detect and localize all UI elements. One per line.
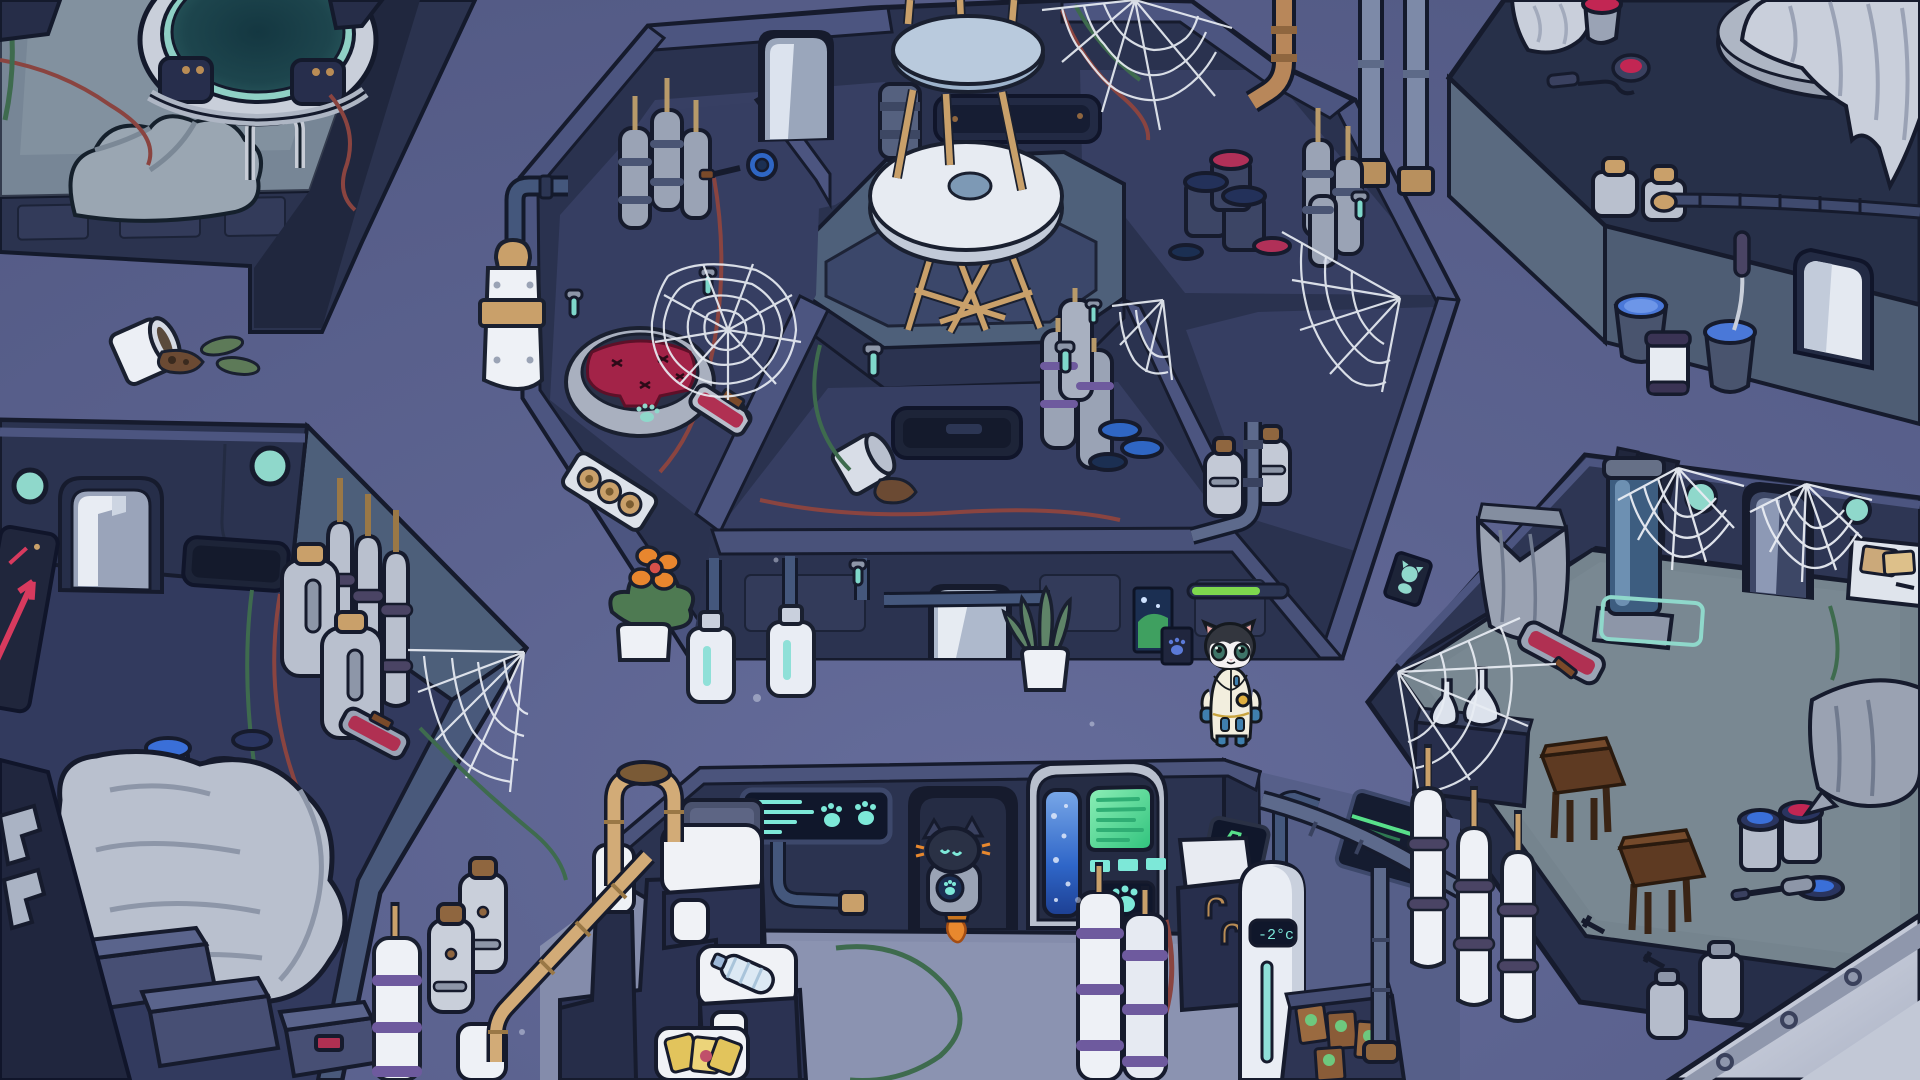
svg-text:-2°c: -2°c bbox=[1258, 927, 1294, 944]
